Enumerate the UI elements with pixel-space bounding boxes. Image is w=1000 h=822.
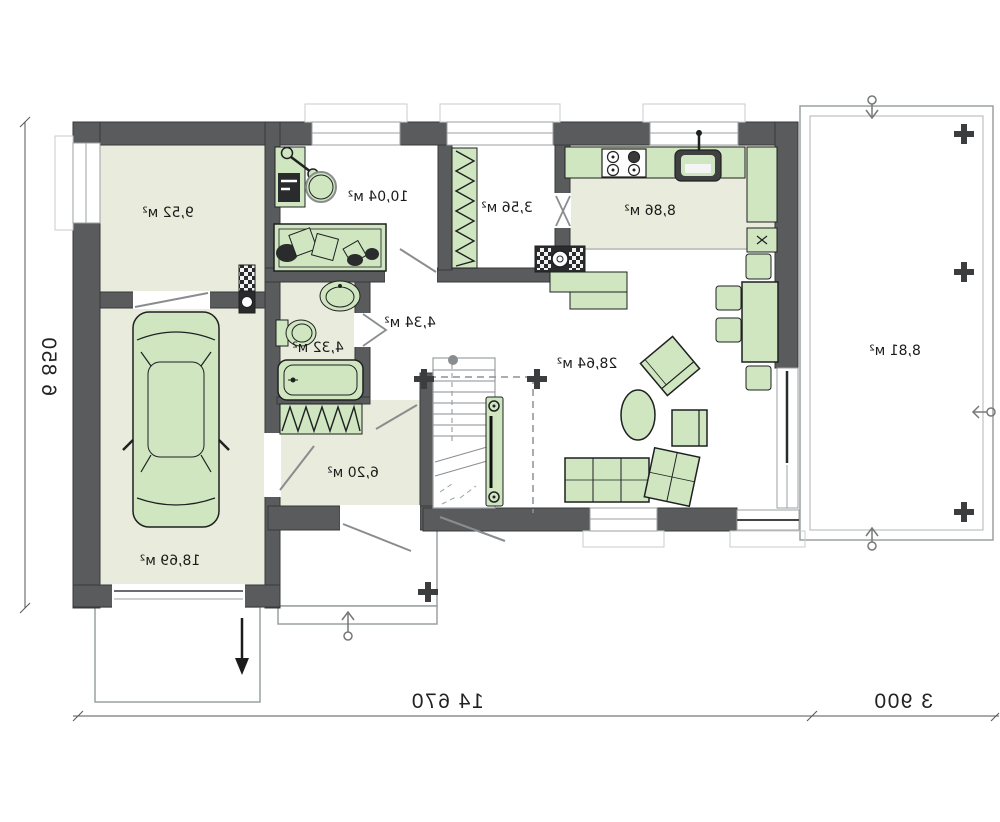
stove-icon bbox=[602, 149, 646, 177]
wall-living-bottom2 bbox=[657, 508, 737, 531]
stair-side-unit bbox=[486, 397, 503, 506]
opening-garage-hall bbox=[264, 433, 281, 497]
porch-step bbox=[278, 606, 437, 624]
corner-sofa bbox=[565, 448, 700, 506]
window-left bbox=[55, 136, 100, 230]
kitchen-lower-counter2 bbox=[570, 292, 627, 309]
dining-chair bbox=[716, 286, 741, 310]
coffee-table bbox=[621, 390, 655, 440]
wall-stair-hall bbox=[420, 373, 433, 510]
bathroom-label: 4,32 м² bbox=[292, 340, 344, 356]
corridor-label: 4,34 м² bbox=[384, 315, 436, 331]
garage-label: 18,69 м² bbox=[140, 553, 201, 569]
window-living-corner bbox=[730, 510, 805, 547]
dining-chair bbox=[716, 318, 741, 342]
armchair-rotated bbox=[640, 336, 699, 395]
kitchen-label: 8,86 м² bbox=[624, 203, 676, 219]
driveway-arrowhead bbox=[235, 658, 249, 675]
opening-room-door bbox=[385, 267, 437, 283]
staircase bbox=[433, 355, 503, 508]
wall-room-pantry bbox=[438, 145, 452, 270]
room-top-label: 10,04 м² bbox=[348, 189, 409, 205]
bathtub bbox=[278, 360, 363, 400]
dining-chair bbox=[746, 254, 771, 279]
wall-top-mid1 bbox=[400, 122, 447, 145]
dining-table bbox=[742, 282, 778, 362]
floor-plan-page: 9,52 м² 18,69 м² 10,04 м² 3,56 м² 8,86 м… bbox=[0, 0, 1000, 822]
entrance-porch bbox=[278, 528, 438, 640]
desk-group bbox=[275, 147, 336, 207]
window-living-1 bbox=[583, 508, 664, 547]
terrace-outer bbox=[800, 106, 993, 540]
dishwasher bbox=[747, 228, 777, 252]
wardrobe-horizontal bbox=[280, 404, 362, 434]
dim-left-label: 6 850 bbox=[37, 336, 60, 396]
fireplace-unit bbox=[535, 246, 585, 272]
wall-hall-bottom bbox=[268, 506, 340, 530]
stair-newel-post bbox=[448, 355, 458, 365]
window-top-2 bbox=[440, 104, 560, 145]
kitchen-counter-right bbox=[747, 147, 777, 222]
wall-top-mid2 bbox=[553, 122, 650, 145]
hall-label: 6,20 м² bbox=[327, 465, 379, 481]
armchair-square bbox=[672, 410, 707, 446]
driveway bbox=[95, 607, 260, 702]
driveway-outline bbox=[95, 607, 260, 702]
dining-set bbox=[716, 254, 778, 390]
desk-chair bbox=[306, 172, 336, 202]
utility-room-label: 9,52 м² bbox=[142, 205, 194, 221]
terrace-label: 8,81 м² bbox=[869, 343, 921, 359]
opening-garage-door bbox=[112, 584, 245, 608]
kitchen-lower-counter1 bbox=[550, 272, 627, 292]
desk-lamp-icon bbox=[282, 148, 293, 159]
flue-icon bbox=[239, 265, 255, 313]
floor-plan-drawing: 9,52 м² 18,69 м² 10,04 м² 3,56 м² 8,86 м… bbox=[0, 0, 1000, 822]
terrace bbox=[800, 96, 995, 550]
window-top-1 bbox=[305, 104, 407, 145]
pantry-label: 3,56 м² bbox=[481, 200, 533, 216]
window-top-3 bbox=[643, 104, 745, 145]
car bbox=[123, 312, 229, 527]
terrace-glass-door bbox=[777, 368, 798, 508]
dim-bottom-terrace-label: 3 900 bbox=[873, 690, 933, 713]
washbasin bbox=[320, 281, 360, 311]
porch-slab bbox=[278, 528, 437, 606]
living-room-label: 28,64 м² bbox=[557, 356, 618, 372]
dim-bottom-main-label: 14 670 bbox=[410, 690, 483, 713]
wardrobe-vertical bbox=[452, 148, 477, 268]
dining-chair bbox=[746, 366, 771, 390]
daybed bbox=[274, 224, 386, 271]
